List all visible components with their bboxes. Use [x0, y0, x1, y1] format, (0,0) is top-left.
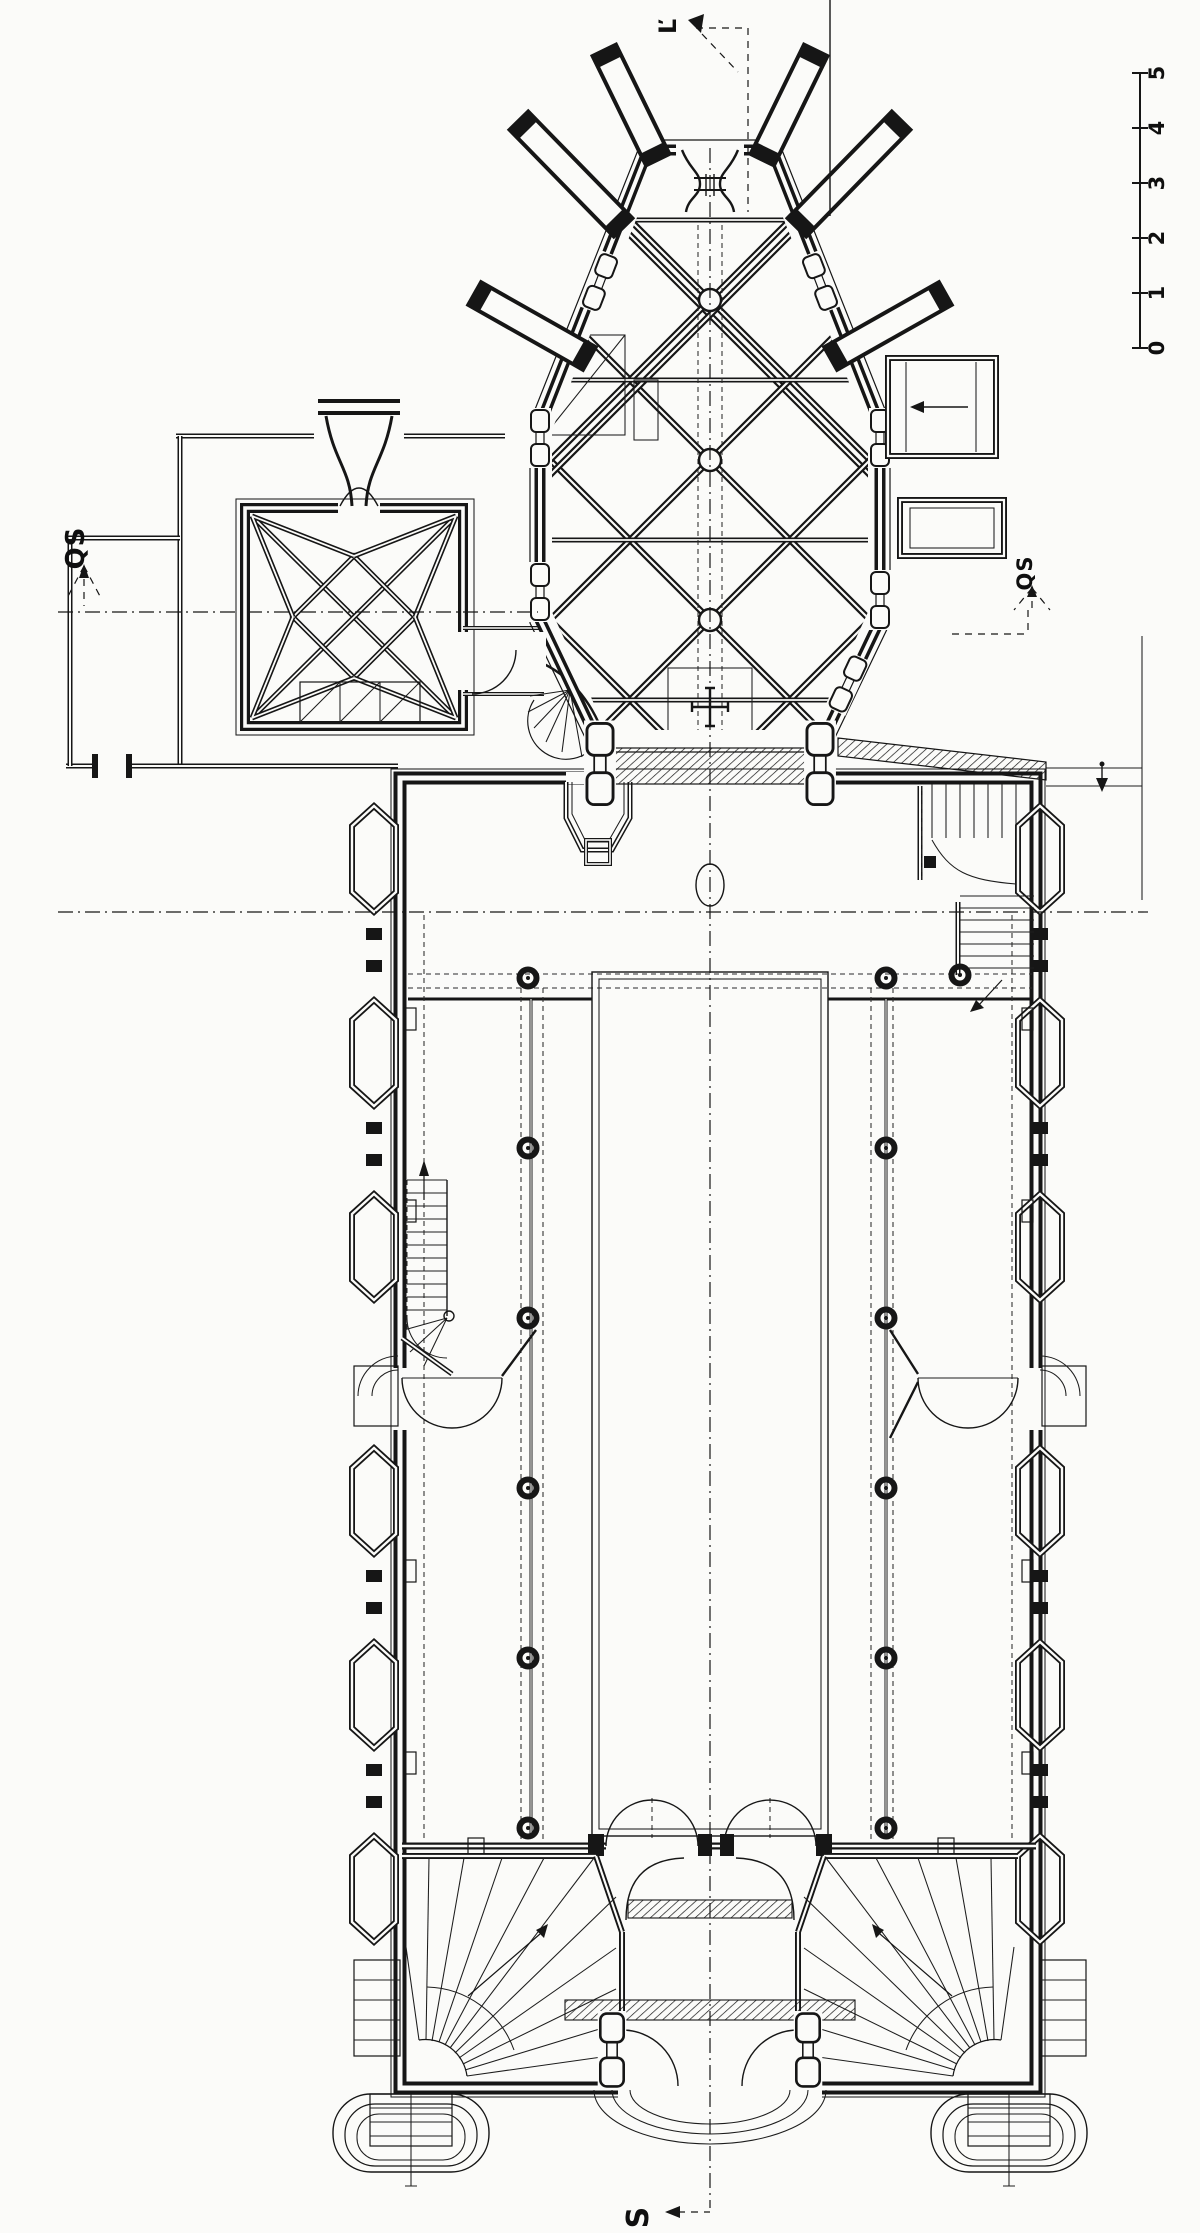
side-annex: [900, 500, 1004, 556]
buttress-chain-left: [352, 806, 396, 1942]
apse-net-vault: [108, 160, 1200, 744]
scale-tick-1: 1: [1145, 286, 1169, 301]
label-leader-right: [952, 585, 1050, 634]
main-portal-opening: [618, 2080, 822, 2098]
scale-tick-2: 2: [1145, 231, 1169, 246]
interior-south-wall: [402, 1800, 1036, 1856]
tower-steps: [300, 682, 420, 722]
scale-tick-4: 4: [1145, 121, 1169, 136]
side-door-left: [354, 1330, 536, 1428]
side-door-right: [890, 1330, 1086, 1438]
fan-stair-southwest: [402, 1856, 622, 2076]
church-floor-plan-drawing: Ľ QS QS S 0 1 2 3 4 5: [0, 0, 1200, 2233]
corner-stair-northeast: [920, 784, 1034, 1012]
scale-bar: 0 1 2 3 4 5: [1132, 66, 1169, 356]
pedestal-southeast: [931, 2094, 1087, 2186]
label-leader-top: [688, 0, 830, 216]
annotations: Ľ QS QS S: [58, 0, 1148, 2228]
wall-tabs: [405, 1008, 1033, 1774]
scale-tick-5: 5: [1145, 66, 1169, 81]
fan-stair-southeast: [798, 1856, 1018, 2076]
tower-portal-pier: [314, 407, 404, 506]
choir-arch: [584, 721, 1046, 808]
floor-plan-sheet: Ľ QS QS S 0 1 2 3 4 5: [0, 0, 1200, 2233]
pedestal-southwest: [333, 2094, 489, 2186]
label-leader-bottom: [665, 2206, 710, 2218]
tower-star-vault: [252, 516, 456, 718]
gallery-columns: [520, 967, 969, 1837]
nave-outer-contour: [391, 769, 1045, 2097]
gate-opening: [96, 760, 128, 773]
section-label-right: QS: [1013, 556, 1037, 591]
side-chapel: [888, 358, 996, 456]
vault-ribs: [108, 160, 1200, 742]
section-label-top: Ľ: [654, 18, 682, 34]
portal-leaf-right: [742, 2030, 798, 2086]
scale-tick-3: 3: [1145, 176, 1169, 191]
section-label-left: QS: [61, 527, 91, 570]
section-label-bottom: S: [621, 2206, 656, 2229]
portal-leaf-left: [622, 2030, 678, 2086]
scale-tick-0: 0: [1145, 341, 1169, 356]
left-door-opening: [392, 1368, 407, 1430]
gallery-stair-left: [402, 1160, 454, 1374]
